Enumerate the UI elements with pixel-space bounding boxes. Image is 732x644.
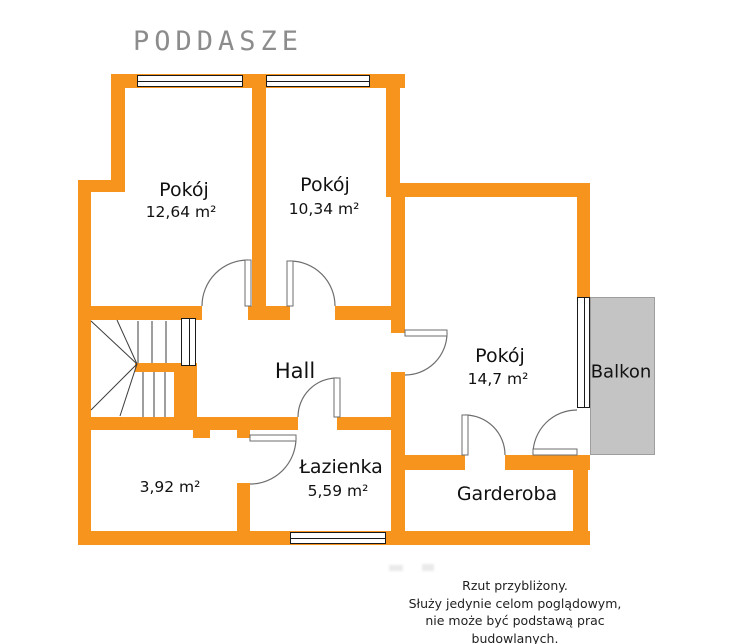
room-label-pokoj3-name: Pokój xyxy=(475,345,525,367)
wall-garderoba-top-a xyxy=(405,455,465,470)
door-arc-balkon xyxy=(533,410,577,454)
window-pane-line xyxy=(584,298,585,407)
room-label-pokoj1-area: 12,64 m² xyxy=(146,203,217,221)
stairs-lower-treads xyxy=(143,372,165,417)
door-leaf-garderoba xyxy=(462,415,468,455)
door-arc-lazienka xyxy=(298,378,337,417)
door-leaf-pokoj2 xyxy=(287,261,293,306)
room-label-pokoj2-name: Pokój xyxy=(300,174,350,196)
watermark-remnant xyxy=(422,564,434,571)
room-label-balkon: Balkon xyxy=(591,362,652,383)
door-leaf-pokoj3 xyxy=(405,330,447,336)
wall-garderoba-right xyxy=(573,455,588,545)
disclaimer-line-2: Służy jedynie celom poglądowym, xyxy=(390,595,640,613)
door-leaf-lazienka xyxy=(334,378,340,417)
stairs-winder-lines xyxy=(91,320,137,416)
wall-hall-bottom-a xyxy=(78,417,298,430)
window-balcony xyxy=(577,297,590,408)
railing-line xyxy=(189,319,190,365)
door-leaf-pokoj1 xyxy=(245,260,251,306)
disclaimer-line-3: nie może być podstawą prac budowlanych. xyxy=(390,612,640,644)
door-leaf-storage xyxy=(250,435,296,441)
window-top-right xyxy=(266,75,370,87)
wall-spine-lower xyxy=(391,372,405,545)
wall-right-section-top xyxy=(398,183,590,197)
wall-stairs-block xyxy=(174,372,197,417)
room-label-storage-area: 3,92 m² xyxy=(140,478,201,496)
watermark-remnant xyxy=(389,565,403,571)
room-label-garderoba: Garderoba xyxy=(457,483,557,505)
window-pane-line xyxy=(291,538,385,539)
wall-left-upper xyxy=(111,74,125,186)
door-arc-storage xyxy=(250,438,296,484)
wall-hall-top-b xyxy=(248,306,290,320)
stairs-upper-treads xyxy=(138,321,166,363)
room-label-pokoj1-name: Pokój xyxy=(159,179,209,201)
wall-hall-top-c xyxy=(335,306,405,320)
room-label-lazienka-name: Łazienka xyxy=(299,456,383,478)
wall-stub-stairs xyxy=(193,430,210,438)
room-label-pokoj3-area: 14,7 m² xyxy=(468,370,529,388)
room-label-lazienka-area: 5,59 m² xyxy=(308,482,369,500)
door-arc-pokoj1 xyxy=(202,260,248,306)
window-top-left xyxy=(137,75,243,87)
wall-hall-bottom-b xyxy=(337,417,405,430)
floor-title: PODDASZE xyxy=(133,26,303,57)
wall-right-outer xyxy=(577,183,590,297)
wall-rooms-divider xyxy=(252,74,266,306)
window-bottom xyxy=(290,532,386,544)
door-arc-pokoj3 xyxy=(405,333,447,375)
floor-plan-canvas: PODDASZE xyxy=(0,0,732,644)
window-pane-line xyxy=(138,81,242,82)
room-label-hall: Hall xyxy=(275,359,315,383)
wall-spine-upper xyxy=(386,74,400,197)
door-arc-garderoba xyxy=(465,415,505,455)
room-label-pokoj2-area: 10,34 m² xyxy=(289,200,360,218)
door-arc-pokoj2 xyxy=(290,261,335,306)
wall-left-outer xyxy=(78,180,91,545)
wall-bath-divider-bottom xyxy=(237,483,250,531)
window-pane-line xyxy=(267,81,369,82)
wall-bath-divider-top xyxy=(237,424,250,438)
disclaimer-line-1: Rzut przybliżony. xyxy=(390,577,640,595)
stairs-railing xyxy=(181,318,196,366)
disclaimer-note: Rzut przybliżony. Służy jedynie celom po… xyxy=(390,577,640,644)
